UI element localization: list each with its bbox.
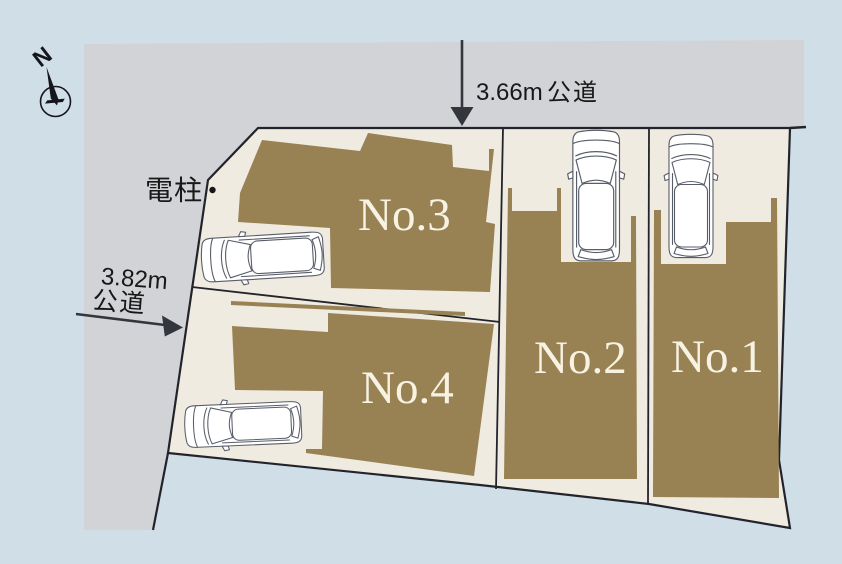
svg-text:No.1: No.1	[671, 331, 764, 383]
svg-text:No.3: No.3	[358, 189, 451, 241]
svg-text:3.66m: 3.66m	[476, 79, 543, 106]
svg-text:No.4: No.4	[361, 362, 454, 414]
svg-text:No.2: No.2	[534, 332, 627, 384]
